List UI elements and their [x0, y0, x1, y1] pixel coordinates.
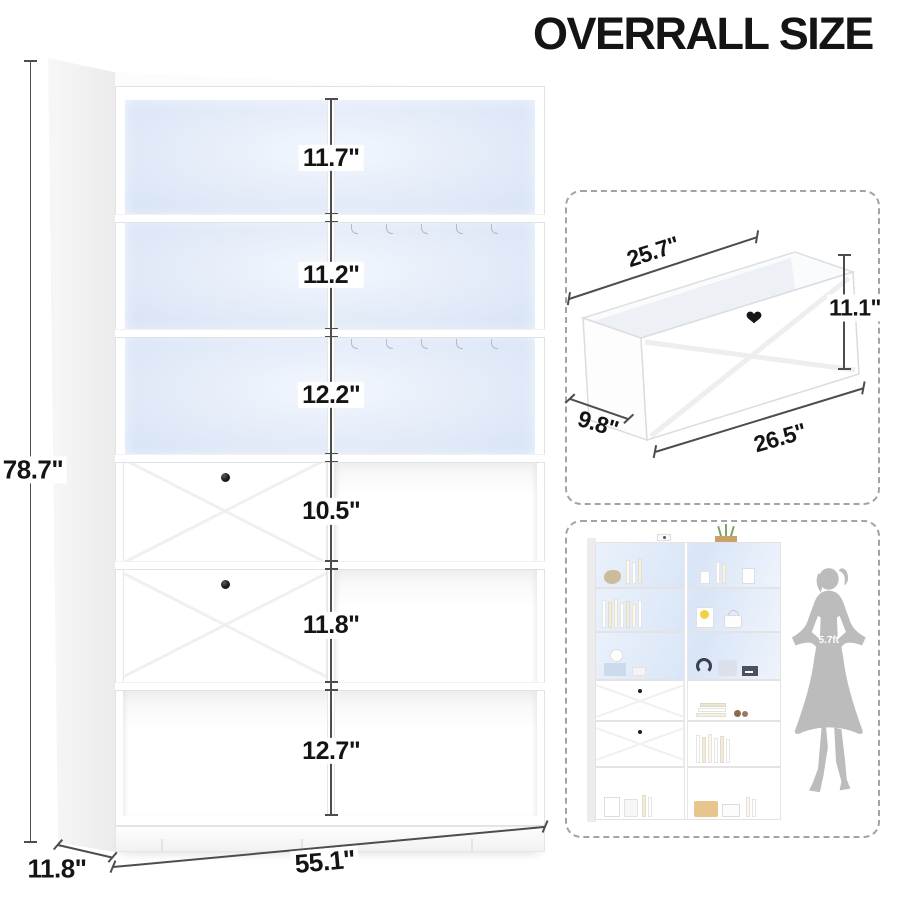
decor-book	[608, 602, 612, 628]
dimension-tick	[838, 368, 851, 370]
decor-book-stack	[700, 703, 726, 707]
decor-book	[626, 601, 630, 628]
mini-shelf-row	[596, 768, 780, 821]
decor-book	[708, 734, 712, 763]
decor-book	[632, 604, 636, 628]
overall-depth-label: 11.8"	[24, 855, 91, 882]
dimension-tick	[53, 839, 63, 850]
decor-sun-art	[700, 610, 709, 619]
decor-hat-box	[610, 649, 623, 662]
person-height-label: 5.7ft	[819, 635, 840, 646]
hook-icon	[421, 224, 428, 234]
dimension-tick	[24, 841, 37, 843]
dimension-tick	[325, 221, 338, 223]
decor-box-label	[745, 671, 753, 673]
overall-width-label: 55.1"	[290, 845, 361, 878]
dimension-tick	[325, 689, 338, 691]
shelf-section-label: 11.2"	[299, 262, 364, 288]
decor-book	[696, 735, 700, 763]
dimension-tick	[325, 560, 338, 562]
decor-book	[726, 739, 730, 763]
decor-book-stack	[696, 713, 726, 717]
decor-dried-flowers	[604, 570, 621, 584]
decor-camera-lens	[663, 536, 666, 539]
mini-drawer	[596, 681, 684, 720]
shelf-section-label: 12.2"	[298, 382, 364, 408]
mini-drawer	[596, 722, 684, 766]
shelf-section-label: 11.8"	[299, 612, 364, 638]
hook-icon	[386, 224, 393, 234]
decor-book	[716, 562, 720, 584]
overall-height-label: 78.7"	[0, 456, 67, 483]
decor-jug	[700, 571, 710, 584]
page-title: OVERRALL SIZE	[533, 8, 893, 60]
hook-icon	[386, 339, 393, 349]
mini-drawer-knob	[638, 730, 642, 734]
dimension-tick	[325, 453, 338, 455]
decor-file-box	[604, 797, 620, 817]
dimension-tick	[325, 98, 338, 100]
overall-height-line	[30, 60, 32, 843]
decor-blue-box	[604, 663, 626, 676]
decor-frame	[742, 568, 755, 584]
styled-bookshelf-photo	[595, 542, 781, 824]
base-notch	[161, 839, 163, 851]
hook-icon	[351, 224, 358, 234]
decor-file-box	[624, 799, 638, 817]
hanging-hooks	[351, 339, 521, 349]
decor-book	[602, 600, 606, 628]
scale-reference-inset: 5.7ft	[565, 520, 880, 838]
decor-tan-box	[694, 801, 718, 817]
dimension-tick	[325, 336, 338, 338]
decor-book	[626, 560, 630, 584]
dimension-tick	[325, 568, 338, 570]
shelf-section-label: 12.7"	[298, 738, 364, 764]
dimension-tick	[325, 328, 338, 330]
hook-icon	[491, 224, 498, 234]
silhouette-leg	[809, 727, 828, 792]
hook-icon	[456, 339, 463, 349]
woman-silhouette: 5.7ft	[781, 560, 873, 812]
hook-icon	[456, 224, 463, 234]
mini-shelf-row	[596, 633, 780, 681]
dimension-tick	[24, 60, 37, 62]
shelf-cavity	[335, 458, 537, 566]
shelf-dimension-line	[330, 98, 332, 816]
shelf-section-label: 11.7"	[299, 145, 364, 171]
decor-book	[720, 736, 724, 763]
decor-book	[642, 795, 646, 817]
dimension-tick	[325, 814, 338, 816]
decor-white-box	[722, 804, 740, 817]
decor-book	[614, 599, 618, 628]
drawer-front	[123, 565, 327, 686]
dimension-tick	[325, 213, 338, 215]
mini-cabinet-front	[595, 542, 781, 820]
silhouette-body	[792, 591, 866, 734]
drawer-detail-inset: 25.7" 11.1" 9.8" 26.5"	[565, 190, 880, 505]
hook-icon	[491, 339, 498, 349]
drawer-knob	[221, 580, 230, 589]
drawer-height-label: 11.1"	[827, 295, 883, 322]
decor-book	[752, 799, 756, 817]
dimension-tick	[838, 254, 851, 256]
decor-book	[746, 797, 750, 817]
decor-bag	[724, 615, 742, 628]
mini-center-divider	[684, 543, 688, 819]
hook-icon	[421, 339, 428, 349]
decor-book	[638, 600, 642, 628]
mini-shelf-row	[596, 589, 780, 633]
decor-book	[702, 737, 706, 763]
mini-drawer-knob	[638, 689, 642, 693]
decor-book	[722, 564, 726, 584]
dimension-tick	[325, 461, 338, 463]
decor-book-stack	[698, 708, 726, 712]
mini-shelf-row	[596, 681, 780, 722]
decor-book	[714, 738, 718, 763]
silhouette-leg	[834, 727, 850, 790]
dimension-tick	[110, 860, 116, 873]
base-notch	[471, 839, 473, 851]
decor-book	[638, 559, 642, 584]
shelf-cavity	[335, 565, 537, 686]
hanging-hooks	[351, 224, 521, 234]
decor-book	[648, 797, 652, 817]
decor-pinecone	[734, 710, 741, 717]
hook-icon	[351, 339, 358, 349]
drawer-front	[123, 458, 327, 566]
decor-pinecone	[742, 711, 748, 717]
silhouette-hair	[839, 568, 848, 585]
shelf-section-label: 10.5"	[298, 498, 364, 524]
decor-book	[620, 603, 624, 628]
infographic-canvas: OVERRALL SIZE 78.7" 11.8" 55.1" 11.7"11.…	[0, 0, 900, 900]
dimension-tick	[325, 681, 338, 683]
mini-shelf-row	[596, 722, 780, 768]
drawer-illustration	[567, 192, 882, 507]
decor-headphones	[696, 658, 712, 674]
mini-shelf-row	[596, 543, 780, 589]
decor-quilted-bag	[718, 660, 737, 676]
decor-book	[632, 562, 636, 584]
decor-item	[632, 667, 646, 676]
drawer-knob	[221, 473, 230, 482]
